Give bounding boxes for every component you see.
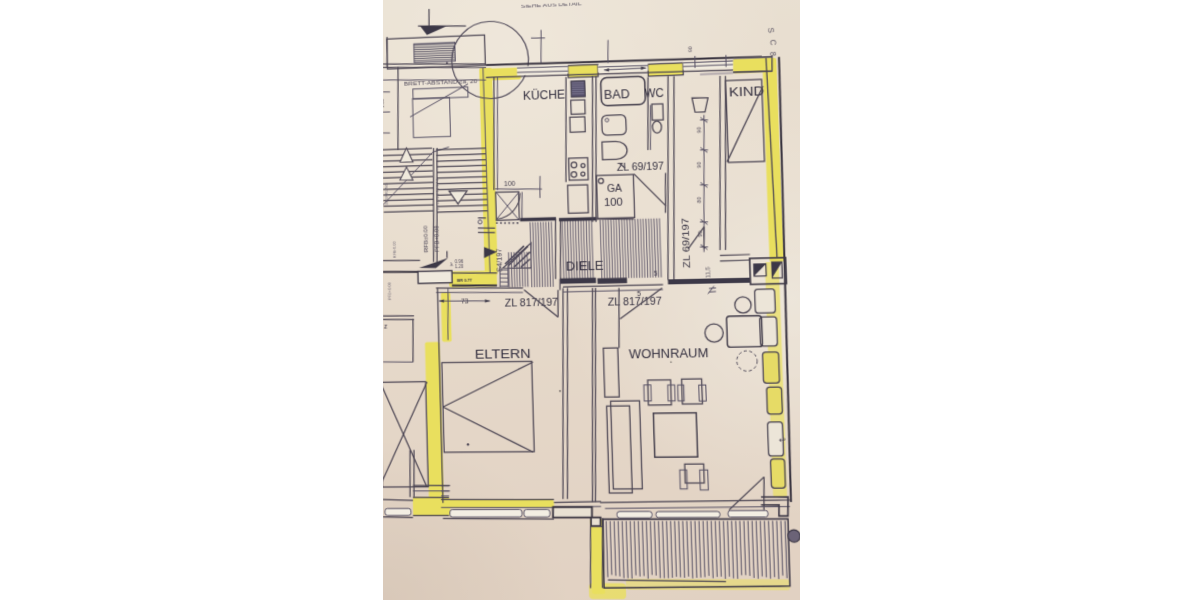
svg-text:100: 100 <box>604 197 623 208</box>
svg-text:z: z <box>384 324 388 332</box>
svg-text:5: 5 <box>654 272 659 279</box>
svg-text:SIEHE AUS DETAIL: SIEHE AUS DETAIL <box>521 1 582 10</box>
svg-text:⬚ ݀: ⬚ ݀ <box>424 248 429 253</box>
svg-text:90: 90 <box>696 127 703 134</box>
svg-text:ZL 817/197: ZL 817/197 <box>608 296 662 308</box>
svg-text:↩: ↩ <box>779 435 786 445</box>
svg-text:S: S <box>766 27 777 34</box>
svg-text:C: C <box>768 39 779 47</box>
svg-text:SPERRUNG: SPERRUNG <box>384 183 389 205</box>
svg-text:RFB-0.00: RFB-0.00 <box>392 241 397 258</box>
svg-text:λ: λ <box>450 262 453 269</box>
svg-text:90: 90 <box>687 46 693 52</box>
svg-text:PFB+0.08: PFB+0.08 <box>434 226 441 253</box>
svg-text:80: 80 <box>696 197 703 204</box>
svg-text:WOHNRAUM: WOHNRAUM <box>629 347 709 361</box>
svg-text:DIELE: DIELE <box>566 260 604 274</box>
svg-text:4 3 2 1 0 9 8 7 6 5 4 3: 4 3 2 1 0 9 8 7 6 5 4 3 <box>435 179 440 214</box>
svg-text:1.20: 1.20 <box>455 264 464 270</box>
svg-text:PFB+0.08: PFB+0.08 <box>387 282 392 300</box>
svg-text:5: 5 <box>637 290 642 298</box>
svg-text:KÜCHE: KÜCHE <box>523 87 566 104</box>
svg-text:8: 8 <box>768 51 778 57</box>
svg-text:11,5: 11,5 <box>705 267 712 278</box>
svg-text:90: 90 <box>696 162 703 169</box>
svg-text:ZL 69/197: ZL 69/197 <box>680 218 693 269</box>
svg-text:ELTERN: ELTERN <box>475 348 531 362</box>
svg-text:BR 0.77: BR 0.77 <box>457 278 472 283</box>
svg-text:S4/197: S4/197 <box>496 248 504 272</box>
svg-text:GA: GA <box>607 183 623 194</box>
svg-text:100: 100 <box>504 180 516 188</box>
svg-text:73: 73 <box>461 298 469 306</box>
svg-text:ZL 817/197: ZL 817/197 <box>505 297 558 309</box>
svg-text:BAD: BAD <box>604 86 631 102</box>
